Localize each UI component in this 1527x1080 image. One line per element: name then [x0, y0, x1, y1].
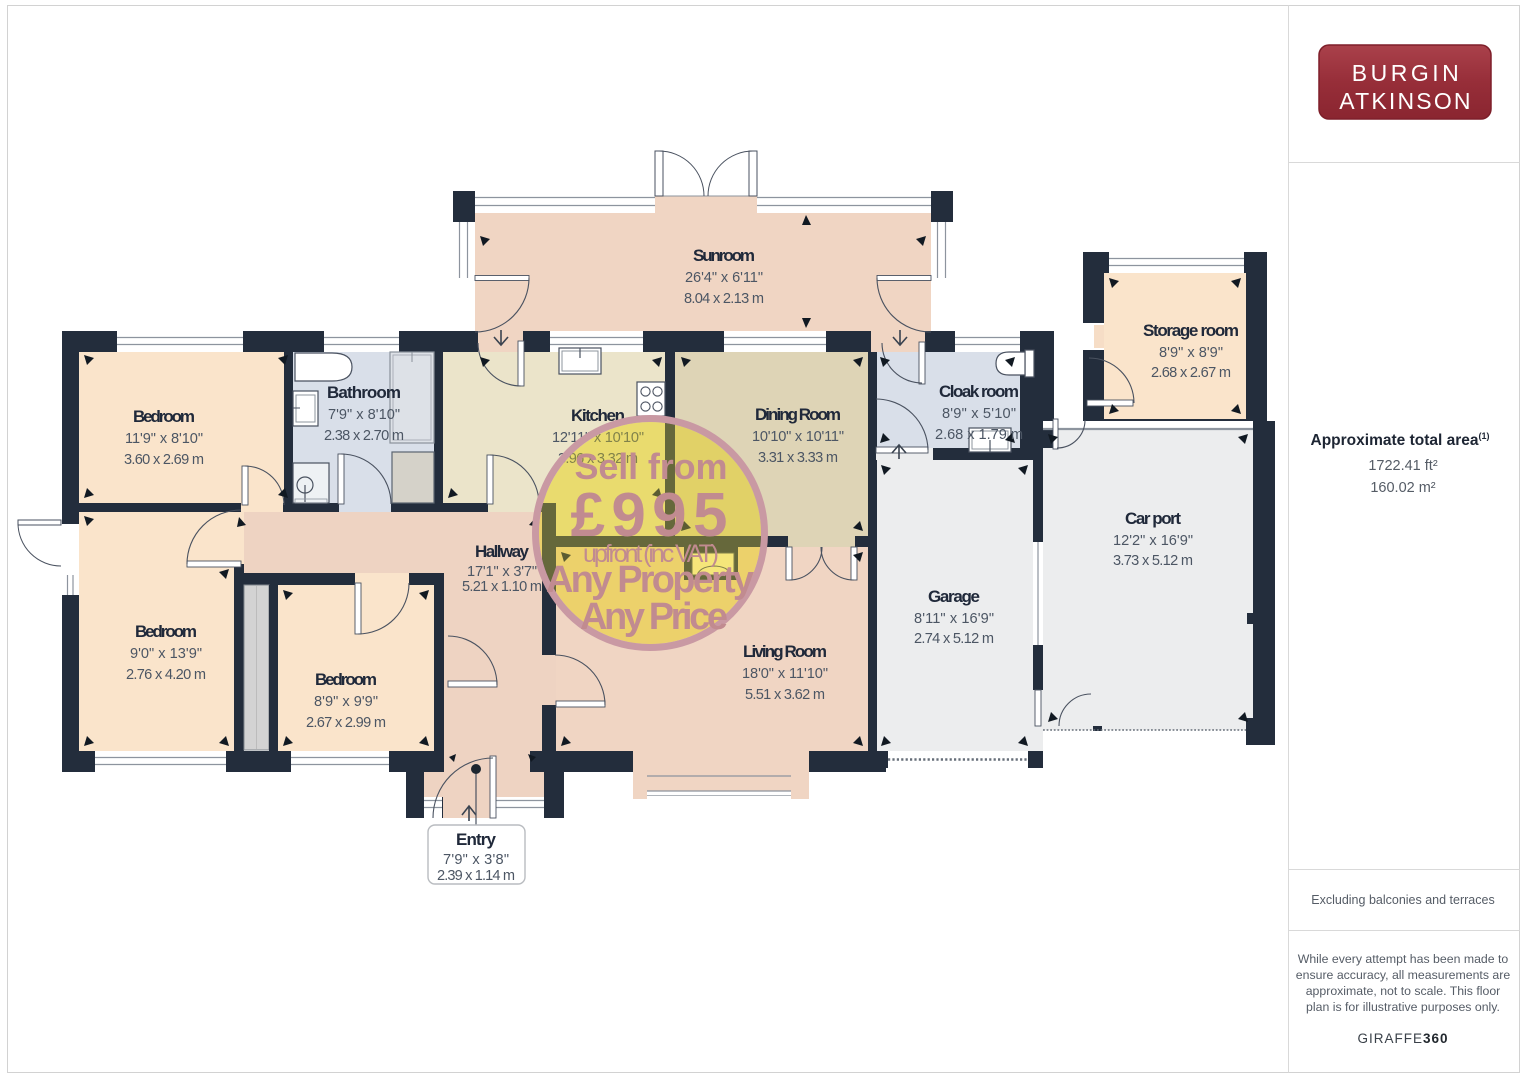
svg-text:approximate, not to scale. Thi: approximate, not to scale. This floor — [1306, 984, 1501, 998]
svg-text:8.04 x 2.13 m: 8.04 x 2.13 m — [684, 291, 764, 307]
svg-text:17'1" x 3'7": 17'1" x 3'7" — [467, 564, 537, 580]
svg-text:8'11" x 16'9": 8'11" x 16'9" — [914, 611, 994, 627]
svg-text:Excluding balconies and terrac: Excluding balconies and terraces — [1311, 893, 1494, 907]
svg-text:Any Price: Any Price — [580, 596, 728, 638]
svg-text:7'9" x 8'10": 7'9" x 8'10" — [328, 407, 400, 423]
svg-text:Approximate total area(1): Approximate total area(1) — [1311, 431, 1490, 449]
svg-text:Storage room: Storage room — [1143, 321, 1239, 340]
svg-text:26'4" x 6'11": 26'4" x 6'11" — [685, 270, 763, 286]
svg-text:Entry: Entry — [456, 830, 497, 849]
svg-text:8'9" x 5'10": 8'9" x 5'10" — [942, 406, 1016, 422]
svg-text:2.68 x 1.79 m: 2.68 x 1.79 m — [935, 427, 1023, 443]
svg-text:ATKINSON: ATKINSON — [1339, 88, 1472, 114]
svg-text:7'9" x 3'8": 7'9" x 3'8" — [443, 852, 509, 868]
svg-text:10'10" x 10'11": 10'10" x 10'11" — [752, 429, 844, 445]
svg-text:9'0" x 13'9": 9'0" x 13'9" — [130, 646, 202, 662]
svg-text:Bathroom: Bathroom — [327, 383, 401, 402]
svg-text:3.31 x 3.33 m: 3.31 x 3.33 m — [758, 450, 838, 466]
svg-text:3.60 x 2.69 m: 3.60 x 2.69 m — [124, 452, 204, 468]
svg-text:Bedroom: Bedroom — [133, 407, 195, 426]
svg-text:While every attempt has been m: While every attempt has been made to — [1298, 952, 1509, 966]
svg-text:2.38 x 2.70 m: 2.38 x 2.70 m — [324, 428, 404, 444]
svg-text:plan is for illustrative purpo: plan is for illustrative purposes only. — [1306, 1000, 1500, 1014]
svg-text:1722.41 ft²: 1722.41 ft² — [1368, 458, 1437, 474]
svg-text:2.68 x 2.67 m: 2.68 x 2.67 m — [1151, 365, 1231, 381]
svg-text:Bedroom: Bedroom — [135, 622, 197, 641]
svg-text:5.21 x 1.10 m: 5.21 x 1.10 m — [462, 579, 542, 595]
svg-text:Any Property: Any Property — [546, 559, 754, 601]
svg-text:ensure accuracy, all measureme: ensure accuracy, all measurements are — [1296, 968, 1511, 982]
svg-text:12'2" x 16'9": 12'2" x 16'9" — [1113, 533, 1193, 549]
svg-text:Living Room: Living Room — [743, 642, 827, 661]
svg-text:11'9" x 8'10": 11'9" x 8'10" — [125, 431, 203, 447]
svg-text:BURGIN: BURGIN — [1352, 60, 1462, 86]
svg-text:Bedroom: Bedroom — [315, 670, 377, 689]
svg-text:Hallway: Hallway — [475, 542, 530, 561]
svg-text:2.67 x 2.99 m: 2.67 x 2.99 m — [306, 715, 386, 731]
svg-text:Garage: Garage — [928, 587, 980, 606]
svg-text:2.39 x 1.14 m: 2.39 x 1.14 m — [437, 868, 515, 884]
svg-text:8'9" x 8'9": 8'9" x 8'9" — [1159, 345, 1223, 361]
svg-text:Sunroom: Sunroom — [693, 246, 755, 265]
svg-text:GIRAFFE360: GIRAFFE360 — [1357, 1031, 1448, 1046]
svg-text:2.76 x 4.20 m: 2.76 x 4.20 m — [126, 667, 206, 683]
svg-text:2.74 x 5.12 m: 2.74 x 5.12 m — [914, 631, 994, 647]
svg-text:Dining Room: Dining Room — [755, 405, 841, 424]
svg-text:18'0" x 11'10": 18'0" x 11'10" — [742, 666, 828, 682]
svg-text:3.73 x 5.12 m: 3.73 x 5.12 m — [1113, 553, 1193, 569]
svg-text:5.51 x 3.62 m: 5.51 x 3.62 m — [745, 687, 825, 703]
svg-text:Car port: Car port — [1125, 509, 1181, 528]
svg-text:Cloak room: Cloak room — [939, 382, 1019, 401]
svg-text:160.02 m²: 160.02 m² — [1370, 480, 1435, 496]
svg-text:8'9" x 9'9": 8'9" x 9'9" — [314, 694, 378, 710]
